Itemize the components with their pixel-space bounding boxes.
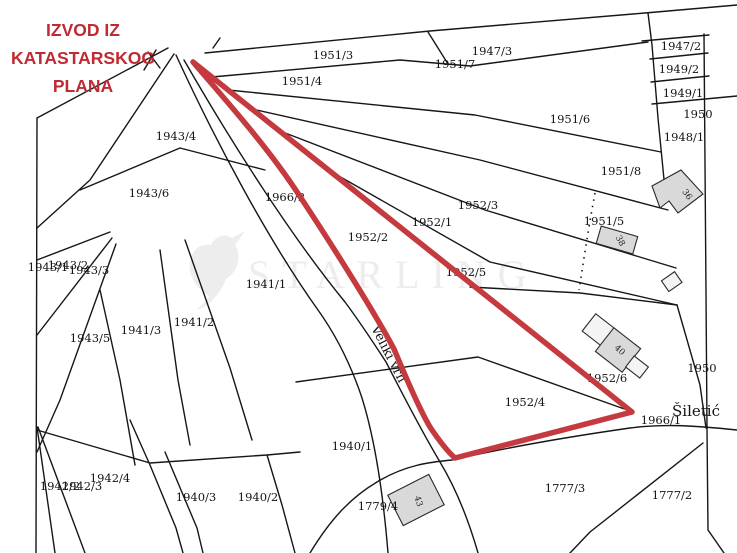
parcel-label-1779-4: 1779/4 [358, 499, 398, 513]
starling-bird-icon [190, 231, 245, 310]
parcel-label-1952-2: 1952/2 [348, 230, 388, 244]
parcel-label-1943-5: 1943/5 [70, 331, 110, 345]
parcel-label-1951-7: 1951/7 [435, 57, 475, 71]
parcel-label-1951-4: 1951/4 [282, 74, 322, 88]
watermark-text: STARLING [248, 252, 539, 297]
parcel-label-1949-2: 1949/2 [659, 62, 699, 76]
parcel-label-1948-1: 1948/1 [664, 130, 704, 144]
cadastral-map-page: STARLING [0, 0, 737, 553]
title-line-3: PLANA [53, 76, 114, 96]
parcel-label-1949-1: 1949/1 [663, 86, 703, 100]
parcel-label-1941-2: 1941/2 [174, 315, 214, 329]
parcel-label-1943-4: 1943/4 [156, 129, 196, 143]
building-36 [652, 170, 703, 213]
cadastral-map: STARLING [0, 0, 737, 553]
title-line-1: IZVOD IZ [46, 20, 120, 40]
parcel-label-1940-2: 1940/2 [238, 490, 278, 504]
parcel-label-1952-1: 1952/1 [412, 215, 452, 229]
parcel-label-1951-6: 1951/6 [550, 112, 590, 126]
parcel-label-1942-4: 1942/4 [90, 471, 130, 485]
parcel-label-1950-top: 1950 [683, 107, 712, 121]
parcel-label-1952-3: 1952/3 [458, 198, 498, 212]
parcel-label-1940-1: 1940/1 [332, 439, 372, 453]
street-label-siletic: Šiletić [672, 402, 720, 420]
parcel-label-1941-3: 1941/3 [121, 323, 161, 337]
parcel-label-1952-4: 1952/4 [505, 395, 545, 409]
building-small-white [661, 272, 682, 292]
parcel-label-1951-5: 1951/5 [584, 214, 624, 228]
parcel-label-1941-1: 1941/1 [246, 277, 286, 291]
parcel-label-1777-3: 1777/3 [545, 481, 585, 495]
parcel-label-1777-2: 1777/2 [652, 488, 692, 502]
parcel-label-1940-3: 1940/3 [176, 490, 216, 504]
parcel-label-1947-2: 1947/2 [661, 39, 701, 53]
parcel-label-1947-3: 1947/3 [472, 44, 512, 58]
parcel-label-1950: 1950 [687, 361, 716, 375]
parcel-label-1951-8: 1951/8 [601, 164, 641, 178]
parcel-label-1943-3: 1943/3 [69, 263, 109, 277]
parcel-label-1943-6: 1943/6 [129, 186, 169, 200]
title-line-2: KATASTARSKOG [11, 48, 155, 68]
parcel-label-1951-3: 1951/3 [313, 48, 353, 62]
title-block: IZVOD IZ KATASTARSKOG PLANA [11, 20, 155, 96]
